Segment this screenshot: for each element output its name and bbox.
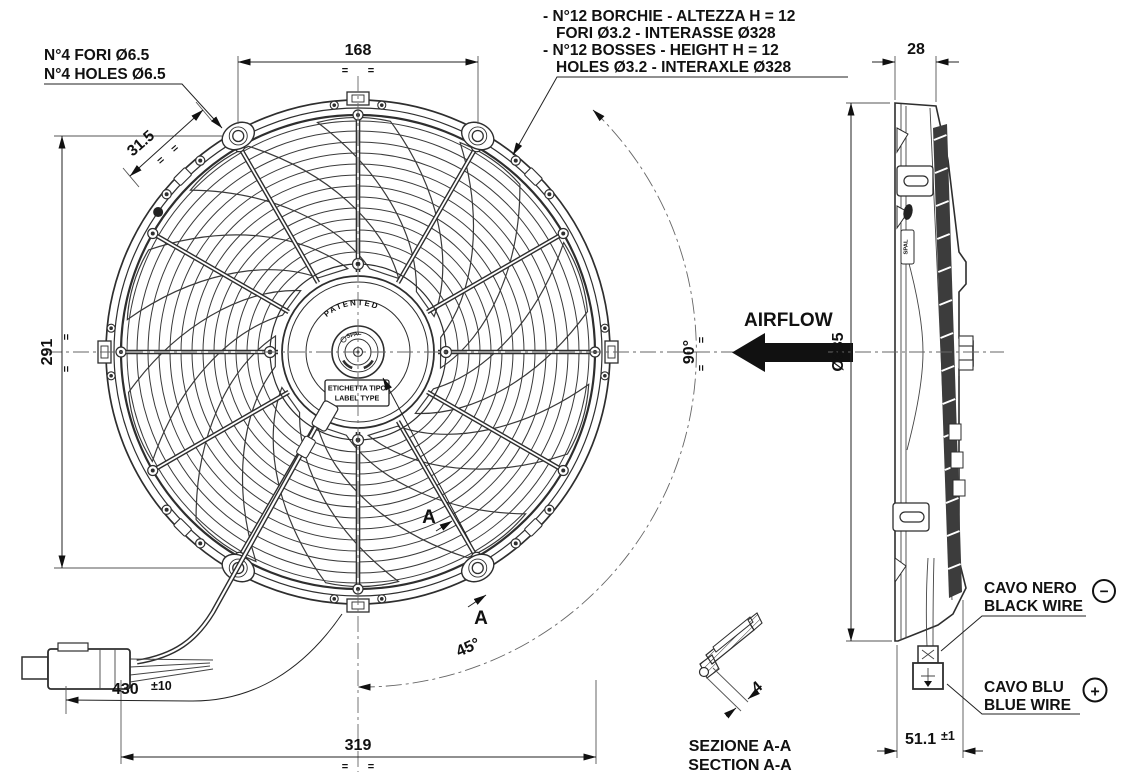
clip-rivet-dot: [109, 374, 113, 378]
dim-291: 291: [39, 339, 56, 366]
symmetry-mark: =: [368, 761, 374, 773]
bosses-note-line4: HOLES Ø3.2 - INTERAXLE Ø328: [556, 59, 792, 76]
fan-technical-drawing: PATENTED SPAL ETICHETTA TIPO LABEL TYPE: [0, 0, 1136, 780]
section-title-it: SEZIONE A-A: [689, 738, 792, 755]
spoke-rivet-dot: [561, 232, 565, 236]
boss-rivet-dot: [198, 159, 202, 163]
clip-rivet-dot: [380, 597, 384, 601]
connector-latch: [58, 643, 88, 651]
blue-wire-label-it: CAVO BLU: [984, 679, 1064, 696]
holes-note-leader: [44, 84, 222, 128]
holes-note-line2: N°4 HOLES Ø6.5: [44, 66, 166, 83]
black-wire-label-it: CAVO NERO: [984, 580, 1077, 597]
drawing-canvas: PATENTED SPAL ETICHETTA TIPO LABEL TYPE: [0, 0, 1136, 780]
clip-rivet-dot: [603, 326, 607, 330]
boss-bracket: [173, 518, 191, 536]
side-brand-label: SPAL: [904, 239, 910, 254]
clip-rivet-dot: [109, 326, 113, 330]
dim-diameter: Ø335: [830, 332, 847, 371]
type-label-line1: ETICHETTA TIPO: [328, 384, 387, 393]
symmetry-mark: =: [61, 366, 73, 372]
motor-bracket-finger: [953, 480, 965, 496]
symmetry-mark: =: [696, 337, 708, 343]
mounting-hole: [233, 130, 244, 141]
angle-45-label: 45°: [454, 635, 483, 660]
clip-rivet-dot: [332, 597, 336, 601]
boss-rivet-dot: [165, 508, 169, 512]
fan-side-view: SPAL: [828, 103, 1004, 689]
boss-bracket: [524, 518, 542, 536]
symmetry-mark: =: [169, 142, 182, 155]
spoke-rivet-dot: [151, 469, 155, 473]
dim-319: 319: [345, 737, 372, 754]
boss-rivet-dot: [198, 541, 202, 545]
dim-430: 430: [112, 681, 139, 698]
dim-168: 168: [345, 42, 372, 59]
black-wire-label-en: BLACK WIRE: [984, 598, 1083, 615]
symmetry-mark: =: [368, 65, 374, 77]
symmetry-mark: =: [61, 334, 73, 340]
dim-4: 4: [748, 678, 766, 697]
section-foot-cap: [700, 668, 709, 677]
hub-stub: [959, 336, 973, 346]
ring-brand-rivet: [153, 207, 163, 217]
clip-rivet-dot: [332, 103, 336, 107]
boss-rivet-dot: [547, 508, 551, 512]
dim-28: 28: [907, 41, 925, 58]
fan-front-view: PATENTED SPAL ETICHETTA TIPO LABEL TYPE: [22, 76, 736, 772]
motor-bracket-finger: [949, 424, 961, 440]
boss-rivet-dot: [547, 192, 551, 196]
extension-line: [706, 677, 741, 711]
section-arrow: [468, 595, 486, 607]
extension-line: [123, 168, 139, 187]
airflow-label: AIRFLOW: [744, 310, 833, 331]
side-mount-slot: [900, 512, 924, 522]
section-detail: 4 SEZIONE A-A SECTION A-A: [688, 613, 792, 774]
symmetry-mark: =: [696, 365, 708, 371]
clip-rivet-dot: [380, 103, 384, 107]
extension-line: [196, 102, 212, 121]
spoke-rivet-dot: [151, 232, 155, 236]
bosses-note-leader: [513, 77, 848, 155]
section-marker-a: A: [474, 608, 488, 629]
wire-strand: [130, 666, 210, 675]
motor-bracket-finger: [951, 452, 963, 468]
plus-sign: +: [1090, 684, 1099, 701]
type-label-line2: LABEL TYPE: [335, 394, 380, 403]
extension-line: [713, 668, 748, 702]
connector-nose: [22, 657, 48, 679]
section-title-en: SECTION A-A: [688, 757, 792, 774]
bosses-note-line3: - N°12 BOSSES - HEIGHT H = 12: [543, 42, 779, 59]
boss-bracket: [524, 167, 542, 185]
section-marker-a: A: [422, 507, 436, 528]
wire-callouts: CAVO NERO BLACK WIRE − CAVO BLU BLUE WIR…: [941, 580, 1115, 714]
hub-stub: [959, 360, 973, 370]
bosses-note-line1: - N°12 BORCHIE - ALTEZZA H = 12: [543, 8, 795, 25]
boss-rivet-dot: [514, 541, 518, 545]
holes-note-line1: N°4 FORI Ø6.5: [44, 47, 150, 64]
side-mount-slot: [904, 176, 928, 186]
dim-430-tolerance: ±10: [151, 679, 172, 693]
minus-sign: −: [1099, 584, 1108, 601]
symmetry-mark: =: [155, 154, 168, 167]
blue-wire-label-en: BLUE WIRE: [984, 697, 1071, 714]
dim-51-1: 51.1: [905, 731, 936, 748]
symmetry-mark: =: [342, 65, 348, 77]
dim-line-4: [726, 708, 736, 716]
spoke-rivet-dot: [561, 469, 565, 473]
clip-rivet-dot: [603, 374, 607, 378]
boss-bracket: [173, 167, 191, 185]
mounting-hole: [472, 130, 483, 141]
bosses-note-line2: FORI Ø3.2 - INTERASSE Ø328: [556, 25, 776, 42]
mounting-hole: [472, 563, 483, 574]
boss-rivet-dot: [165, 192, 169, 196]
symmetry-mark: =: [342, 761, 348, 773]
boss-rivet-dot: [514, 159, 518, 163]
dim-51-1-tolerance: ±1: [941, 729, 955, 743]
